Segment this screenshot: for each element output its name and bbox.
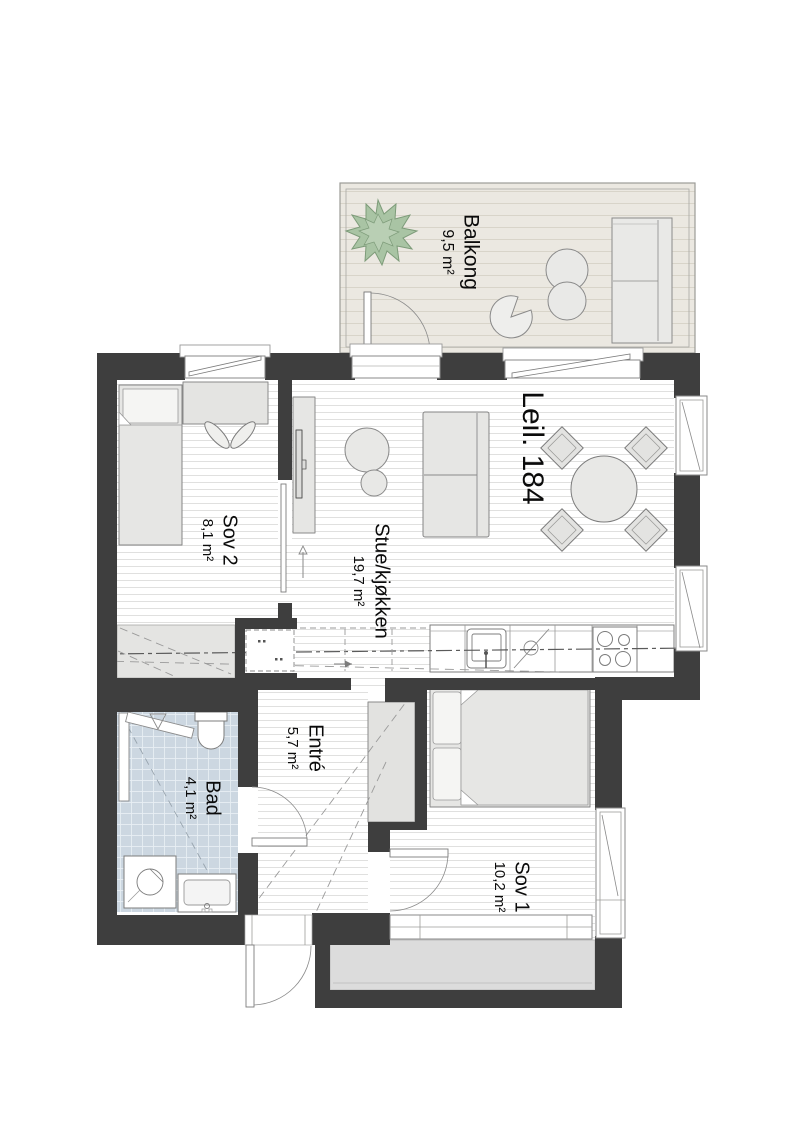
bedroom2-window xyxy=(180,345,270,378)
bathroom-area-label: 4,1 m² xyxy=(182,777,199,820)
sofa xyxy=(423,412,489,537)
floor-plan-page: Balkong 9,5 m² xyxy=(0,0,800,1131)
bathroom-label: Bad xyxy=(202,780,224,816)
bedroom2-wardrobe xyxy=(117,625,235,678)
living-room-area-label: 19,7 m² xyxy=(350,556,367,607)
bedroom2-desk xyxy=(183,382,268,424)
dining-table xyxy=(571,456,637,522)
kitchen-sink xyxy=(467,629,506,668)
living-window-2 xyxy=(676,566,707,651)
bedroom1-window-bottom xyxy=(390,915,592,939)
toilet-icon xyxy=(195,712,227,749)
bedroom1-bed xyxy=(430,688,590,807)
entry-wardrobe xyxy=(368,702,415,822)
balcony-table-small xyxy=(548,282,586,320)
floor-plan-drawing: Balkong 9,5 m² xyxy=(0,0,800,1131)
balcony-sofa xyxy=(612,218,672,343)
entry-label: Entré xyxy=(305,724,327,772)
balcony-window xyxy=(503,348,643,378)
washing-machine-icon xyxy=(124,856,176,908)
tv-bench xyxy=(293,397,315,533)
entrance-door xyxy=(245,915,312,1007)
coffee-table-small xyxy=(361,470,387,496)
bedroom2-label: Sov 2 xyxy=(219,514,241,565)
entry-area-label: 5,7 m² xyxy=(284,727,301,770)
balcony-area-label: 9,5 m² xyxy=(439,229,456,275)
bathroom-sink-icon xyxy=(178,874,236,912)
living-room-label: Stue/kjøkken xyxy=(371,523,393,639)
balcony-door xyxy=(350,344,442,378)
balcony-label: Balkong xyxy=(459,214,482,290)
bedroom1-label: Sov 1 xyxy=(511,861,533,912)
tv-icon xyxy=(296,430,302,498)
technical-niche xyxy=(246,630,294,671)
living-window-1 xyxy=(676,396,707,475)
coffee-table-large xyxy=(345,428,389,472)
bedroom2-area-label: 8,1 m² xyxy=(199,519,216,562)
apartment-label: Leil. 184 xyxy=(516,391,549,504)
balcony: Balkong 9,5 m² xyxy=(340,183,695,353)
bedroom1-window-right xyxy=(596,808,625,938)
bedroom2-bed xyxy=(119,385,182,545)
bedroom1-area-label: 10,2 m² xyxy=(491,862,508,913)
